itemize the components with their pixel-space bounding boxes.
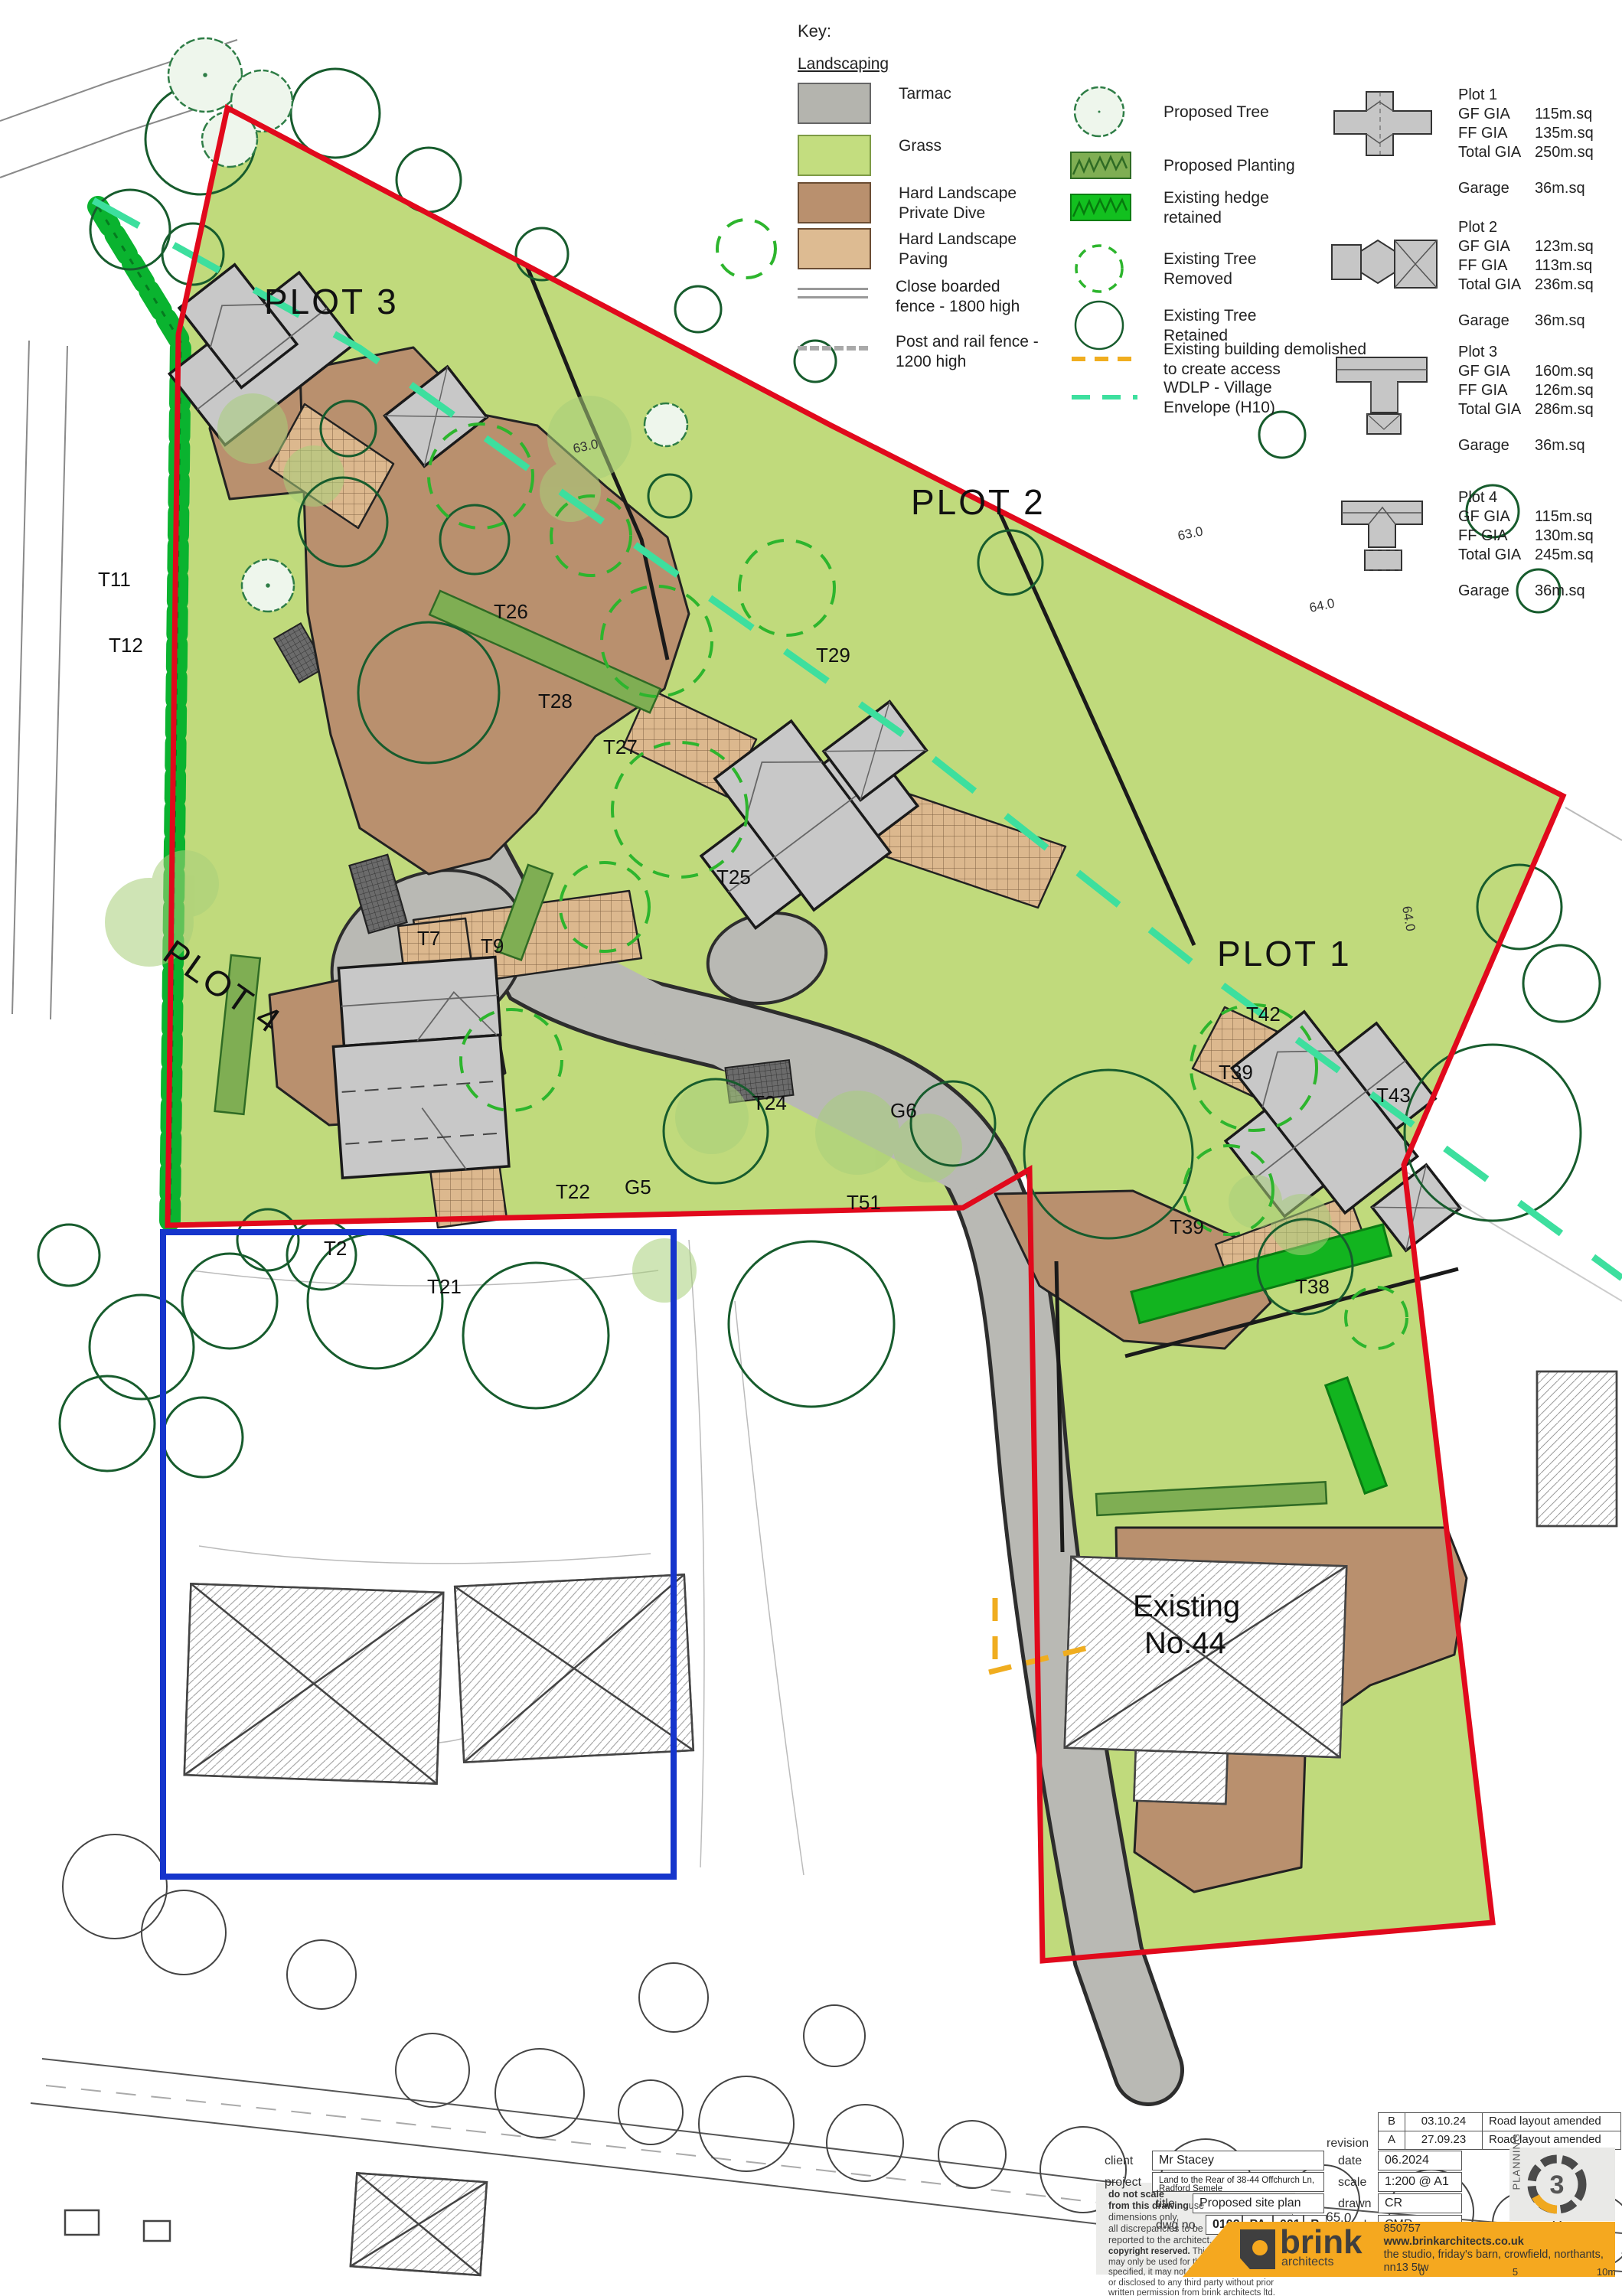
revision-table: B 03.10.24 Road layout amended A 27.09.2… [1378, 2112, 1621, 2150]
legend-label-private-drive: Hard Landscape Private Dive [899, 182, 1017, 223]
scale-value: 1:200 @ A1 [1378, 2172, 1462, 2192]
svg-text:G5: G5 [625, 1176, 651, 1199]
brink-logo-mark-icon [1240, 2229, 1275, 2269]
project-label: project [1105, 2176, 1141, 2190]
plot2-house-icon [1323, 222, 1449, 306]
legend-label-proposed-planting: Proposed Planting [1163, 155, 1295, 176]
key-title: Key: [798, 21, 831, 41]
drawn-value: CR [1378, 2193, 1462, 2213]
svg-text:T26: T26 [494, 600, 528, 623]
plot4-house-icon [1323, 486, 1449, 582]
legend-label-close-fence: Close boarded fence - 1800 high [896, 276, 1020, 317]
svg-text:T51: T51 [847, 1191, 881, 1214]
svg-text:63.0: 63.0 [1177, 523, 1204, 543]
plot1-house-icon [1323, 77, 1449, 168]
svg-text:T11: T11 [98, 568, 131, 591]
svg-text:3: 3 [1550, 2170, 1565, 2200]
plot2-label: PLOT 2 [911, 482, 1046, 522]
svg-text:T7: T7 [417, 927, 440, 950]
svg-text:T12: T12 [109, 634, 143, 657]
copyright-bold: copyright reserved. [1108, 2247, 1190, 2256]
scale-0: 0 [1419, 2265, 1425, 2278]
legend-label-paving: Hard Landscape Paving [899, 228, 1017, 269]
svg-text:T38: T38 [1295, 1275, 1330, 1298]
legend-label-existing-hedge: Existing hedge retained [1163, 187, 1269, 228]
key-subtitle: Landscaping [798, 55, 889, 73]
svg-text:T22: T22 [556, 1180, 590, 1203]
planning-stamp: PLANNING 3 [1509, 2148, 1615, 2221]
legend-label-post-rail: Post and rail fence - 1200 high [896, 331, 1039, 372]
date-value: 06.2024 [1378, 2151, 1462, 2170]
svg-text:T27: T27 [603, 735, 638, 758]
wdlp-icon [1070, 392, 1147, 403]
svg-text:T39: T39 [1219, 1061, 1253, 1084]
plot1-label: PLOT 1 [1217, 934, 1352, 974]
drawn-label: drawn [1338, 2197, 1372, 2211]
grass-swatch [798, 135, 871, 176]
plot3-house-icon [1323, 341, 1449, 444]
revision-row: B 03.10.24 Road layout amended [1379, 2113, 1620, 2131]
legend-label-wdlp: WDLP - Village Envelope (H10) [1163, 377, 1275, 418]
brand-band: brink architects e: info@brinkarchitects… [1183, 2222, 1615, 2277]
plot2-schedule: Plot 2 GF GIA123m.sq FF GIA113m.sq Total… [1458, 218, 1611, 331]
revision-row: A 27.09.23 Road layout amended [1379, 2131, 1620, 2149]
private-drive-swatch [798, 182, 871, 223]
svg-text:T24: T24 [752, 1091, 787, 1114]
tarmac-swatch [798, 83, 871, 124]
svg-text:64.0: 64.0 [1308, 595, 1336, 615]
svg-text:T42: T42 [1246, 1003, 1281, 1026]
legend-label-proposed-tree: Proposed Tree [1163, 101, 1269, 122]
client-label: client [1105, 2154, 1133, 2168]
building-demolished-icon [1070, 354, 1147, 364]
plot3-schedule: Plot 3 GF GIA160m.sq FF GIA126m.sq Total… [1458, 343, 1611, 455]
legend-label-tree-removed: Existing Tree Removed [1163, 248, 1256, 289]
scale-10: 10m [1597, 2265, 1616, 2278]
plot4-schedule: Plot 4 GF GIA115m.sq FF GIA130m.sq Total… [1458, 488, 1611, 601]
svg-text:T28: T28 [538, 690, 573, 713]
plot1-schedule: Plot 1 GF GIA115m.sq FF GIA135m.sq Total… [1458, 86, 1611, 198]
existing44-label-2: No.44 [1144, 1626, 1226, 1660]
existing-tree-removed-icon [1070, 242, 1147, 295]
date-label: date [1338, 2154, 1362, 2168]
plot4-house [328, 957, 510, 1179]
close-boarded-fence-icon [798, 288, 868, 298]
svg-text:G6: G6 [890, 1099, 917, 1122]
proposed-tree-icon [1070, 83, 1147, 141]
proposed-planting-icon [1070, 152, 1147, 179]
paving-swatch [798, 228, 871, 269]
legend-label-grass: Grass [899, 135, 942, 156]
planning-stamp-ring: 3 [1522, 2149, 1592, 2219]
svg-text:T21: T21 [427, 1275, 462, 1298]
brink-logo-word: brink [1280, 2229, 1363, 2255]
legend-label-tarmac: Tarmac [899, 83, 951, 104]
scale-label: scale [1338, 2176, 1366, 2190]
plot3-label: PLOT 3 [264, 282, 399, 321]
existing44-label-1: Existing [1133, 1590, 1240, 1623]
web-value[interactable]: www.brinkarchitects.co.uk [1384, 2236, 1615, 2249]
svg-text:T39: T39 [1170, 1215, 1204, 1238]
existing-hedge-icon [1070, 194, 1147, 221]
svg-text:T29: T29 [816, 644, 850, 667]
svg-text:T43: T43 [1376, 1084, 1411, 1107]
svg-text:T9: T9 [481, 934, 504, 957]
revision-label: revision [1327, 2137, 1369, 2151]
do-not-scale-bold: do not scale from this drawing [1108, 2189, 1189, 2211]
planning-stamp-label: PLANNING [1511, 2179, 1522, 2190]
svg-text:T2: T2 [324, 1237, 347, 1260]
svg-text:T25: T25 [716, 866, 751, 889]
drawing-sheet: PLOT 3 PLOT 2 PLOT 1 PLOT 4 Existing No.… [0, 0, 1622, 2296]
scale-5: 5 [1513, 2265, 1518, 2278]
client-value: Mr Stacey [1152, 2151, 1324, 2170]
brink-logo: brink architects [1240, 2229, 1363, 2269]
post-rail-fence-icon [798, 346, 868, 351]
